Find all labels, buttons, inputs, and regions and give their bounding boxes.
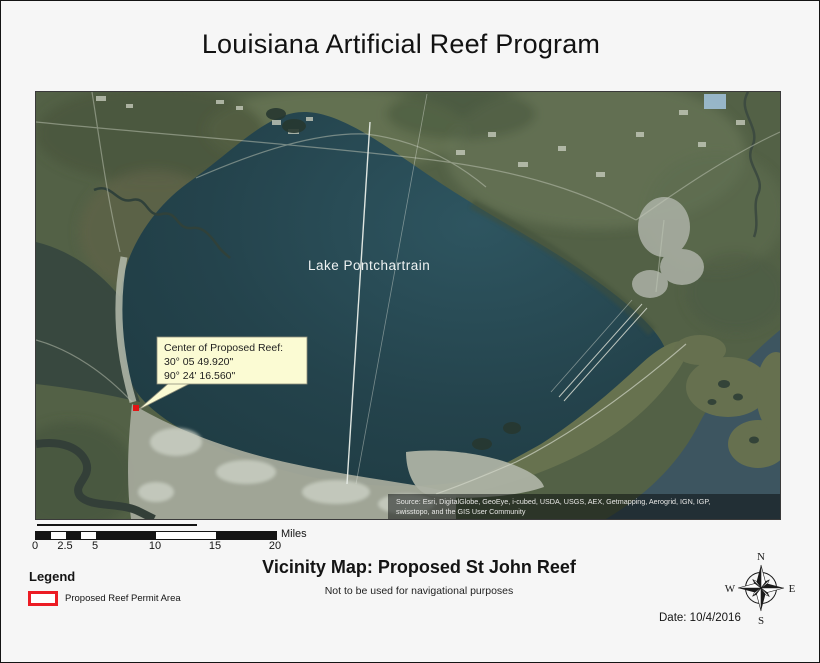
map-title-block: Vicinity Map: Proposed St John Reef Not …	[229, 557, 609, 597]
compass-cardinal-points	[738, 565, 784, 611]
map-frame: Lake Pontchartrain Source: Esri, Digital…	[35, 91, 781, 520]
attribution-line1: Source: Esri, DigitalGlobe, GeoEye, i-cu…	[396, 497, 710, 506]
airport-water-feature	[704, 94, 726, 109]
lake-label: Lake Pontchartrain	[308, 258, 430, 273]
compass-w-label: W	[725, 583, 736, 595]
vicinity-map-title: Vicinity Map: Proposed St John Reef	[229, 557, 609, 578]
reef-center-marker	[133, 405, 139, 411]
legend-title: Legend	[29, 569, 75, 584]
scale-bar	[35, 531, 277, 540]
scale-tick-15: 15	[209, 540, 221, 552]
compass-e-label: E	[789, 583, 796, 595]
scale-tick-20: 20	[269, 540, 281, 552]
callout-title: Center of Proposed Reef:	[164, 342, 283, 354]
date-label: Date: 10/4/2016	[659, 612, 741, 624]
map-document-page: Louisiana Artificial Reef Program	[0, 0, 820, 663]
scalebar-rule	[37, 524, 197, 526]
compass-n-label: N	[757, 551, 765, 563]
attribution-line2: swisstopo, and the GIS User Community	[396, 507, 526, 516]
legend-item-label: Proposed Reef Permit Area	[65, 593, 181, 604]
scale-unit-label: Miles	[281, 528, 307, 540]
navigation-disclaimer: Not to be used for navigational purposes	[229, 585, 609, 597]
scale-tick-5: 5	[92, 540, 98, 552]
scale-tick-0: 0	[32, 540, 38, 552]
page-title: Louisiana Artificial Reef Program	[1, 29, 801, 60]
scale-tick-2-5: 2.5	[57, 540, 72, 552]
compass-s-label: S	[758, 615, 764, 625]
callout-longitude: 90° 24' 16.560"	[164, 370, 236, 382]
permit-area-swatch	[28, 591, 58, 606]
satellite-map: Lake Pontchartrain Source: Esri, Digital…	[36, 92, 780, 519]
callout-latitude: 30° 05 49.920"	[164, 356, 234, 368]
scale-tick-10: 10	[149, 540, 161, 552]
